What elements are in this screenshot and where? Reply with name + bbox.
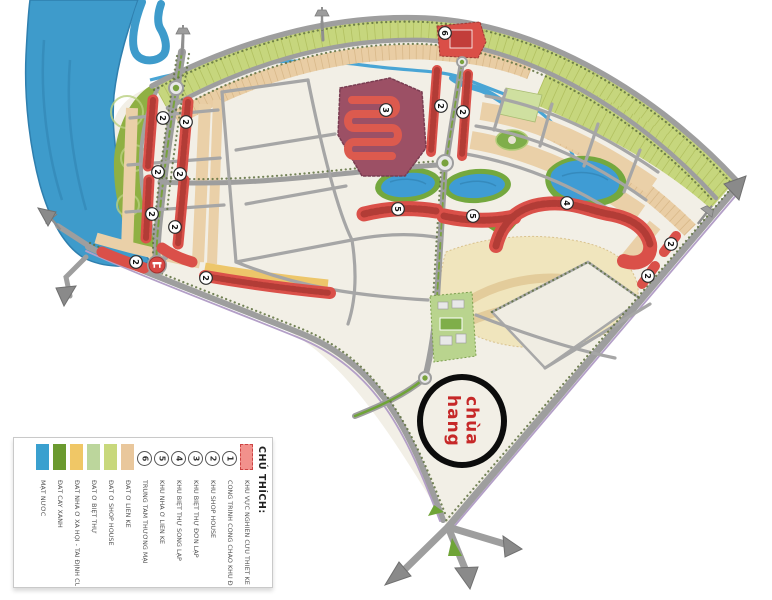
legend-number-badge: 6 [137, 451, 152, 466]
legend-color-swatch [104, 444, 117, 470]
legend-number-badge: 4 [171, 451, 186, 466]
svg-text:6: 6 [440, 30, 449, 36]
canal-hook [133, 2, 166, 60]
legend-item: ĐẤT NHÀ Ở XÃ HỘI - TÁI ĐỊNH CƯ [68, 444, 85, 586]
school-block [430, 292, 476, 362]
map-marker-2: 2 [665, 238, 678, 251]
legend-item: ĐẤT Ở SHOP HOUSE [102, 444, 119, 586]
legend-color-swatch [53, 444, 66, 470]
annotation-line-1: chùa [462, 395, 481, 447]
svg-text:5: 5 [393, 206, 402, 212]
legend-box: CHÚ THÍCH: KHU VỰC NGHIÊN CỨU THIẾT KẾ1C… [13, 437, 273, 588]
legend-color-swatch [87, 444, 100, 470]
arrow-sw-small [56, 286, 76, 306]
legend-color-swatch [36, 444, 49, 470]
legend-item-label: ĐẤT Ở BIỆT THỰ [90, 480, 97, 534]
map-marker-2: 2 [152, 166, 165, 179]
legend-item: ĐẤT Ở BIỆT THỰ [85, 444, 102, 586]
legend-item: 5KHU NHÀ Ở LIỀN KỀ [153, 444, 170, 586]
legend-item-label: ĐẤT Ở LIỀN KỀ [124, 480, 131, 528]
annotation-line-2: hang [443, 395, 462, 447]
svg-text:2: 2 [643, 273, 652, 279]
legend-item-label: KHU NHÀ Ở LIỀN KỀ [158, 480, 165, 544]
legend-item-label: KHU BIỆT THỰ ĐƠN LẬP [192, 480, 199, 558]
legend-number-badge: 2 [205, 451, 220, 466]
svg-text:2: 2 [147, 211, 156, 217]
svg-text:2: 2 [131, 259, 140, 265]
legend-item: ĐẤT CÂY XANH [51, 444, 68, 586]
gateway-1-marker [149, 257, 165, 273]
map-marker-2: 2 [157, 112, 170, 125]
svg-text:3: 3 [381, 107, 390, 113]
legend-item-label: ĐẤT Ở SHOP HOUSE [107, 480, 114, 546]
map-marker-2: 2 [457, 106, 470, 119]
map-marker-2: 2 [146, 208, 159, 221]
legend-item-label: ĐẤT NHÀ Ở XÃ HỘI - TÁI ĐỊNH CƯ [73, 480, 80, 586]
legend-item: 4KHU BIỆT THỰ SONG LẬP [170, 444, 187, 586]
arrow-e [503, 536, 522, 557]
map-marker-5: 5 [467, 210, 480, 223]
legend-item-label: ĐẤT CÂY XANH [56, 480, 63, 528]
map-marker-2: 2 [180, 116, 193, 129]
svg-text:2: 2 [666, 241, 675, 247]
legend-item-label: CÔNG TRÌNH CỔNG CHÀO KHU ĐÔ THỊ [226, 480, 233, 586]
map-marker-3: 3 [380, 104, 393, 117]
gate-tower-icon [176, 25, 190, 48]
legend-item-label: TRUNG TÂM THƯƠNG MẠI [141, 480, 148, 564]
map-marker-2: 2 [435, 100, 448, 113]
svg-text:2: 2 [175, 171, 184, 177]
masterplan-map: 22222222222234556 chùa hang CHÚ THÍCH: K… [0, 0, 772, 600]
legend-items: KHU VỰC NGHIÊN CỨU THIẾT KẾ1CÔNG TRÌNH C… [18, 444, 255, 586]
map-marker-2: 2 [200, 272, 213, 285]
legend-item-label: KHU VỰC NGHIÊN CỨU THIẾT KẾ [243, 480, 250, 585]
chua-hang-text: chùa hang [443, 395, 480, 447]
map-marker-4: 4 [561, 197, 574, 210]
svg-text:2: 2 [181, 119, 190, 125]
legend-color-swatch [240, 444, 253, 470]
legend-item: 3KHU BIỆT THỰ ĐƠN LẬP [187, 444, 204, 586]
legend-item-label: KHU SHOP HOUSE [209, 480, 216, 538]
svg-text:5: 5 [468, 213, 477, 219]
legend-item-label: KHU BIỆT THỰ SONG LẬP [175, 480, 182, 561]
legend-number-badge: 3 [188, 451, 203, 466]
legend-number-badge: 5 [154, 451, 169, 466]
legend-color-swatch [121, 444, 134, 470]
svg-text:4: 4 [562, 200, 571, 206]
map-marker-6: 6 [439, 27, 452, 40]
legend-item: MẶT NƯỚC [34, 444, 51, 586]
map-marker-2: 2 [174, 168, 187, 181]
svg-text:2: 2 [201, 275, 210, 281]
legend-item-label: MẶT NƯỚC [39, 480, 46, 516]
svg-text:2: 2 [436, 103, 445, 109]
map-marker-2: 2 [169, 221, 182, 234]
svg-text:2: 2 [170, 224, 179, 230]
map-marker-2: 2 [642, 270, 655, 283]
legend-number-badge: 1 [222, 451, 237, 466]
map-marker-2: 2 [130, 256, 143, 269]
svg-text:2: 2 [458, 109, 467, 115]
legend-item: KHU VỰC NGHIÊN CỨU THIẾT KẾ [238, 444, 255, 586]
legend-item: 1CÔNG TRÌNH CỔNG CHÀO KHU ĐÔ THỊ [221, 444, 238, 586]
svg-text:2: 2 [158, 115, 167, 121]
arrow-s [455, 567, 478, 589]
map-marker-5: 5 [392, 203, 405, 216]
legend-color-swatch [70, 444, 83, 470]
chua-hang-annotation: chùa hang [417, 374, 507, 468]
legend-item: 6TRUNG TÂM THƯƠNG MẠI [136, 444, 153, 586]
legend-item: 2KHU SHOP HOUSE [204, 444, 221, 586]
svg-text:2: 2 [153, 169, 162, 175]
legend-title: CHÚ THÍCH: [256, 446, 267, 514]
legend-item: ĐẤT Ở LIỀN KỀ [119, 444, 136, 586]
